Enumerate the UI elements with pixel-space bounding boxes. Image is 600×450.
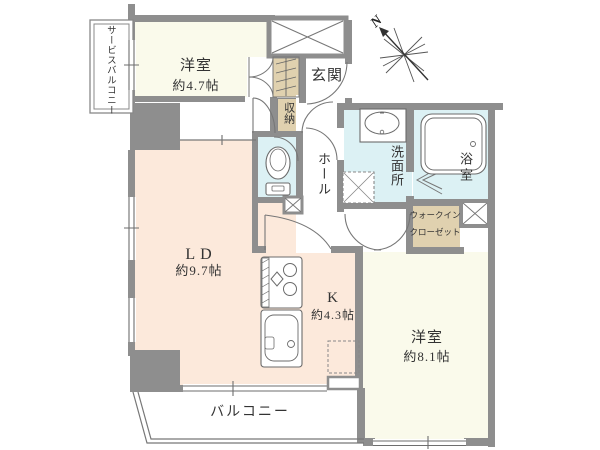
label-wic-line2: クローゼット — [409, 228, 460, 238]
label-bedroom-47: 洋室 — [180, 58, 212, 75]
refrigerator-space — [328, 341, 359, 373]
pipe-shaft-x-box — [284, 197, 302, 213]
label-balcony: バルコニー — [210, 405, 290, 421]
label-bedroom-81: 洋室 — [411, 330, 443, 347]
bathtub-icon — [421, 114, 486, 174]
toilet-icon — [266, 147, 290, 195]
vanity-sink-icon — [360, 109, 406, 142]
washing-machine-icon — [343, 172, 374, 203]
stove-icon — [261, 257, 302, 308]
label-ld: LD — [185, 246, 216, 264]
label-kitchen-size: 約4.3帖 — [311, 309, 355, 323]
label-hall: ホール — [315, 152, 330, 197]
label-wic-line1: ウォークイン — [409, 211, 460, 221]
kitchen-sink-icon — [261, 310, 302, 367]
interior-line — [180, 135, 256, 145]
label-kitchen: K — [327, 290, 339, 307]
pipe-shaft-x-box — [461, 201, 489, 226]
window — [183, 381, 327, 396]
label-bedroom-81-size: 約8.1帖 — [403, 350, 450, 365]
plan-linework — [0, 0, 600, 450]
closet-icon — [249, 57, 299, 97]
floor-plan: サービスバルコニー 洋室 約4.7帖 玄関 収納 ホール 洗面所 浴室 ウォーク… — [0, 0, 600, 450]
compass-icon — [379, 27, 428, 82]
window — [127, 298, 136, 342]
label-service-balcony: サービスバルコニー — [104, 25, 115, 115]
label-bedroom-47-size: 約4.7帖 — [172, 79, 219, 94]
label-storage: 収納 — [282, 102, 295, 124]
window — [124, 197, 139, 260]
void-x-box — [269, 18, 346, 56]
label-washroom: 洗面所 — [388, 145, 403, 187]
window — [373, 436, 466, 449]
label-entrance: 玄関 — [311, 68, 343, 85]
label-ld-size: 約9.7帖 — [175, 264, 222, 279]
label-bathroom: 浴室 — [457, 152, 472, 184]
window — [328, 377, 360, 389]
